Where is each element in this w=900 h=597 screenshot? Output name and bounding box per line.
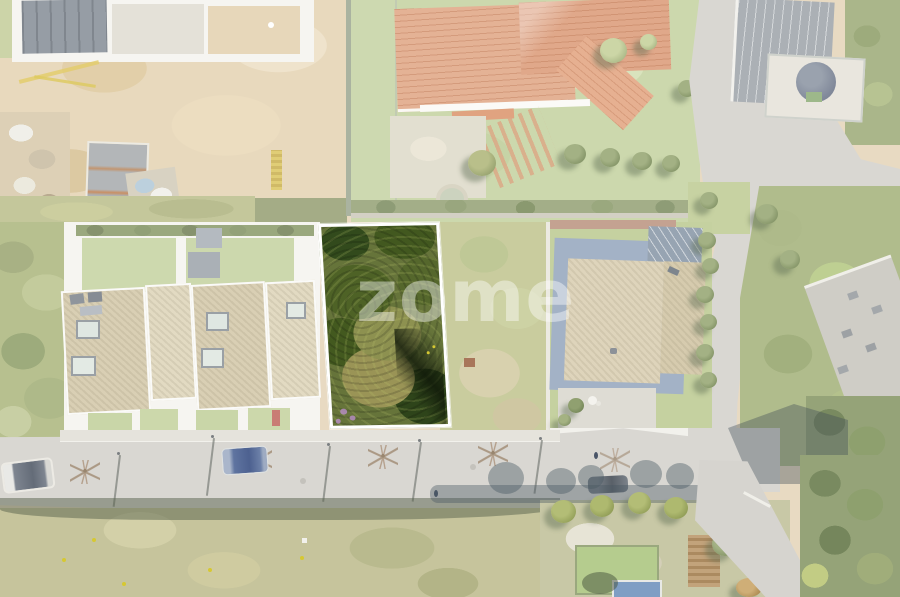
wildflowers (208, 568, 212, 572)
tree (780, 250, 800, 269)
yellow-ladder (271, 150, 282, 190)
garden-shed (647, 226, 702, 264)
skylight (71, 356, 96, 376)
manhole (300, 478, 306, 484)
hedge-tree (702, 258, 719, 274)
tree (600, 38, 627, 63)
stone-wall (351, 213, 700, 218)
hedge-tree (698, 232, 716, 249)
skylight (201, 348, 224, 368)
gravel-roof (191, 281, 271, 411)
parked-car-dark (0, 457, 55, 494)
yellow-flowers (427, 351, 430, 354)
wild-vegetation (0, 222, 66, 457)
gravel-roof (145, 283, 197, 401)
purple-flowers (340, 409, 347, 415)
roof-object (268, 22, 274, 28)
bush-shadow-band (430, 485, 740, 503)
pedestrian (594, 452, 598, 459)
gravel-roof (61, 287, 151, 415)
bush (558, 414, 571, 426)
light-pole (539, 437, 542, 440)
chimney (610, 348, 617, 354)
round-tree (664, 497, 688, 519)
concrete-slab (112, 4, 204, 54)
tree (600, 148, 620, 167)
hedge-tree (696, 344, 714, 361)
purple-flowers (349, 415, 355, 420)
round-tree (628, 492, 651, 514)
light-pole (418, 439, 421, 442)
light-pole (327, 443, 330, 446)
roof-furniture (88, 292, 103, 303)
hedge-tree (700, 314, 717, 330)
light-pole (211, 435, 214, 438)
parked-car-blue (221, 445, 269, 475)
bush (468, 150, 496, 176)
bare-tree (70, 460, 100, 484)
sidewalk (60, 430, 560, 442)
sand-slab (208, 6, 300, 54)
wildflowers (300, 556, 304, 560)
bare-tree (368, 445, 398, 469)
round-tree (551, 500, 576, 523)
wildflowers (92, 538, 96, 542)
tree (662, 155, 680, 172)
plot-tree-shadow (394, 328, 446, 425)
light-pole (117, 452, 120, 455)
skylight (286, 302, 306, 319)
tree (640, 34, 657, 50)
roof-furniture (80, 305, 103, 316)
round-tree (590, 495, 614, 517)
estate-top-hedge (76, 225, 314, 236)
dark-flat-roof (22, 0, 108, 54)
hedge-tree (700, 372, 717, 388)
bare-tree (600, 448, 630, 472)
purple-flowers (336, 419, 341, 424)
right-house-roof (564, 258, 664, 383)
roof-furniture (69, 293, 84, 305)
rooftop-unit (196, 228, 222, 248)
aerial-photo: zome (0, 0, 900, 597)
grass-field (0, 508, 560, 597)
skylight (76, 320, 100, 339)
patio-table (588, 396, 597, 405)
wildflowers (122, 582, 126, 586)
tree (564, 144, 586, 164)
gravel-roof (265, 280, 321, 400)
hedge-tree (696, 286, 714, 303)
red-door (272, 410, 280, 426)
tree (756, 204, 778, 224)
yellow-flowers (432, 345, 435, 348)
skylight (206, 312, 229, 331)
wildflowers (62, 558, 66, 562)
litter (302, 538, 307, 543)
bush-shadow (630, 460, 662, 488)
dense-trees-corner (800, 455, 900, 597)
garden-shadow (582, 572, 618, 594)
blue-canopy (612, 580, 662, 597)
bush (568, 398, 584, 413)
rooftop-unit (188, 252, 220, 278)
parcel-object (464, 358, 475, 367)
tree (632, 152, 652, 170)
manhole (470, 464, 476, 470)
tree (700, 192, 718, 209)
watermark: zome (356, 260, 575, 332)
tank-yard-green (806, 92, 822, 102)
